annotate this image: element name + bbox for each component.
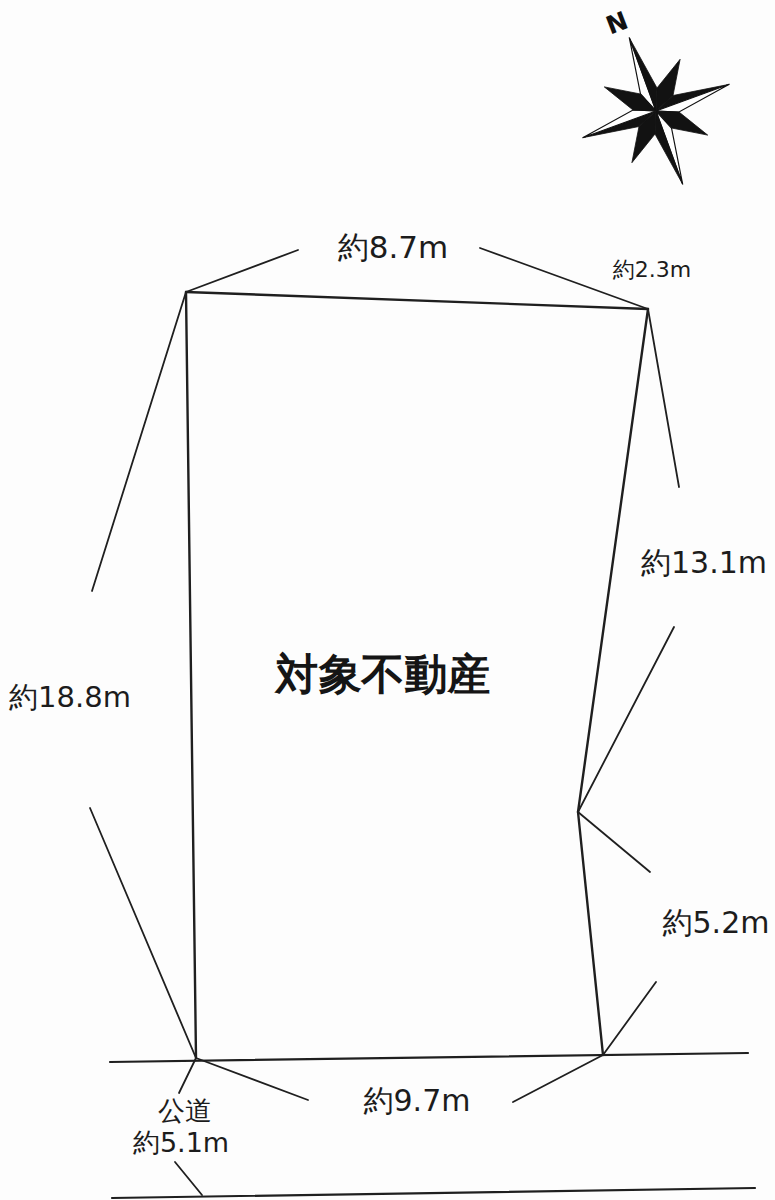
road-edge-near bbox=[110, 1053, 748, 1062]
dimension-label-right-upper: 約13.1m bbox=[641, 545, 767, 580]
extension-line-right-upper bbox=[648, 309, 679, 487]
dimension-label-top-right: 約2.3m bbox=[613, 257, 691, 282]
dimension-label-bottom: 約9.7m bbox=[364, 1083, 471, 1118]
boundary-right-lower-edge bbox=[578, 812, 603, 1055]
extension-line-left-lower bbox=[90, 808, 196, 1058]
property-title: 対象不動産 bbox=[274, 649, 491, 699]
dimension-label-left: 約18.8m bbox=[9, 680, 131, 714]
north-label: N bbox=[602, 6, 632, 41]
compass-rose: N bbox=[583, 6, 730, 185]
leader-line-bottom-right bbox=[513, 1055, 603, 1102]
road-edge-far bbox=[112, 1188, 755, 1198]
boundary-right-upper-edge bbox=[578, 309, 648, 812]
survey-diagram-page: N 約8.7m 約2.3m 約13.1m 約18.8m 約5.2m 約9.7m … bbox=[0, 0, 775, 1200]
boundary-left-edge bbox=[186, 292, 196, 1058]
dimension-label-top: 約8.7m bbox=[338, 229, 449, 265]
road-width-label: 約5.1m bbox=[133, 1127, 229, 1158]
leader-line-right-middle bbox=[578, 627, 674, 812]
leader-line-right-lower bbox=[603, 982, 656, 1055]
leader-line-road-lower bbox=[175, 1162, 202, 1195]
leader-line-road-upper bbox=[179, 1058, 196, 1093]
boundary-top-edge bbox=[186, 292, 648, 309]
dimension-label-right-lower: 約5.2m bbox=[663, 905, 770, 940]
extension-line-left-upper bbox=[92, 292, 186, 591]
extension-line-right-middle bbox=[578, 812, 650, 872]
leader-line-bottom-left bbox=[196, 1058, 308, 1100]
leader-line-top-left bbox=[186, 250, 298, 292]
plot-diagram: N 約8.7m 約2.3m 約13.1m 約18.8m 約5.2m 約9.7m … bbox=[0, 0, 775, 1200]
road-type-label: 公道 bbox=[158, 1095, 212, 1126]
